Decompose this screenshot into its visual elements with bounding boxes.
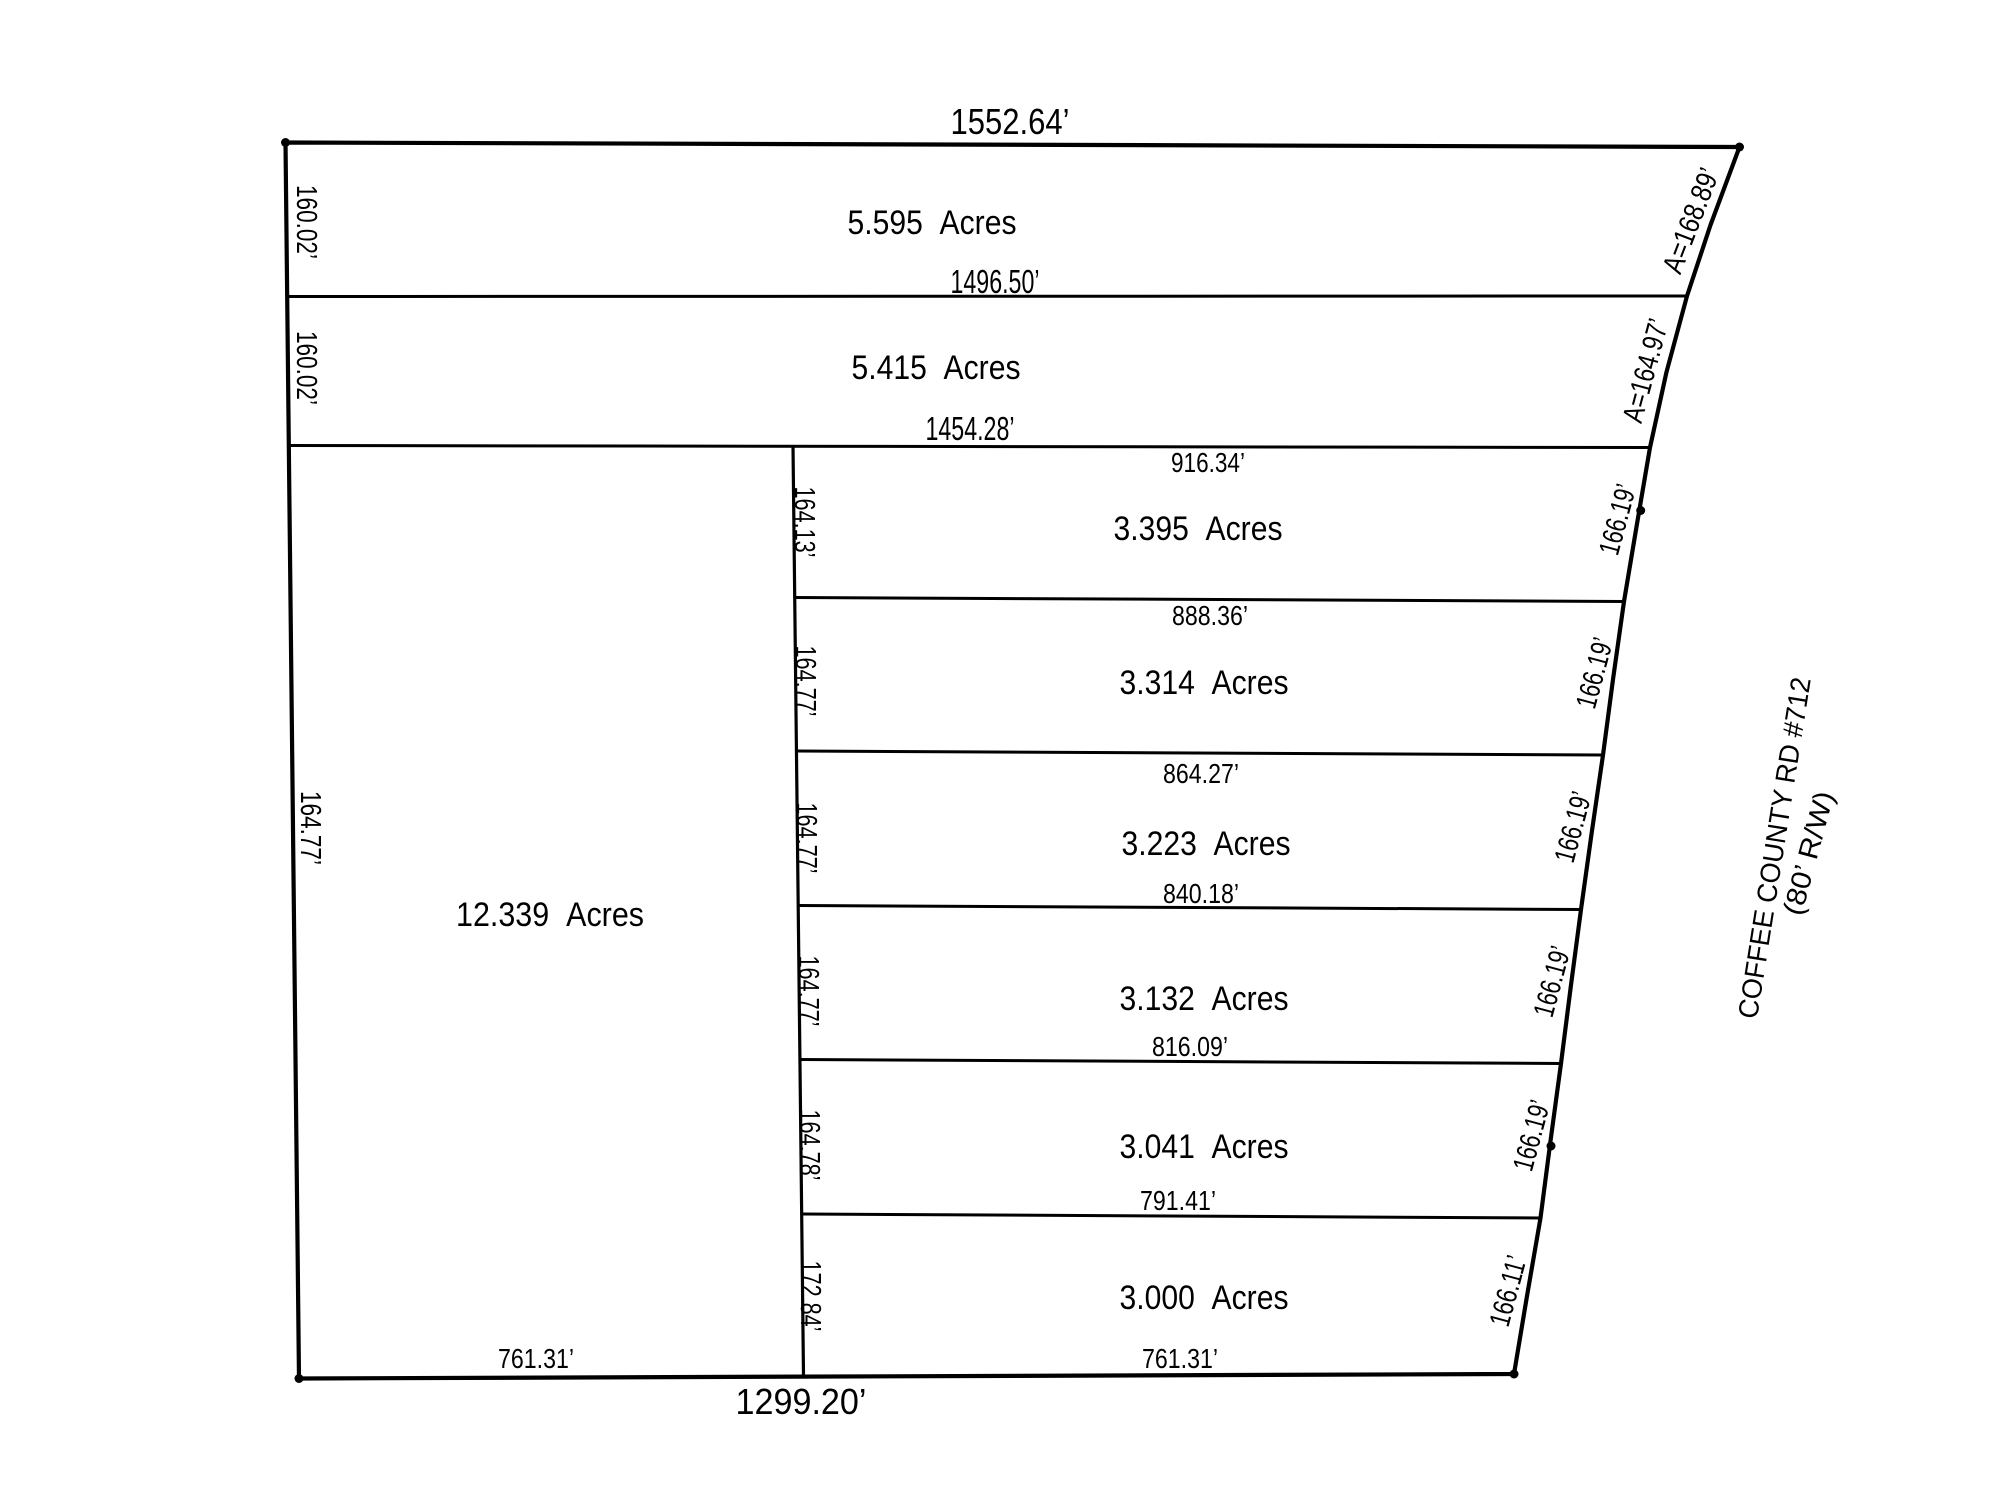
svg-text:5.415 Acres: 5.415 Acres — [852, 349, 1021, 387]
svg-text:164.77’: 164.77’ — [789, 646, 821, 717]
svg-text:791.41’: 791.41’ — [1140, 1185, 1216, 1216]
svg-text:840.18’: 840.18’ — [1163, 878, 1239, 909]
svg-text:164.13’: 164.13’ — [788, 487, 820, 558]
svg-text:172.84’: 172.84’ — [794, 1261, 826, 1332]
svg-text:1496.50’: 1496.50’ — [951, 263, 1040, 300]
svg-text:3.041 Acres: 3.041 Acres — [1120, 1128, 1289, 1166]
svg-text:1552.64’: 1552.64’ — [951, 101, 1070, 142]
svg-text:160.02’: 160.02’ — [290, 185, 322, 259]
svg-text:761.31’: 761.31’ — [1142, 1343, 1218, 1374]
svg-text:3.223 Acres: 3.223 Acres — [1122, 825, 1291, 863]
svg-text:816.09’: 816.09’ — [1152, 1031, 1228, 1062]
svg-text:3.314 Acres: 3.314 Acres — [1120, 664, 1289, 702]
svg-text:164.77’: 164.77’ — [792, 956, 824, 1027]
svg-text:1299.20’: 1299.20’ — [736, 1381, 867, 1422]
svg-text:888.36’: 888.36’ — [1172, 600, 1248, 631]
svg-text:12.339 Acres: 12.339 Acres — [456, 896, 644, 934]
svg-text:5.595 Acres: 5.595 Acres — [848, 204, 1017, 242]
svg-text:3.132 Acres: 3.132 Acres — [1120, 980, 1289, 1018]
svg-text:916.34’: 916.34’ — [1171, 447, 1245, 478]
svg-text:160.02’: 160.02’ — [290, 331, 322, 405]
svg-text:3.000 Acres: 3.000 Acres — [1120, 1279, 1289, 1317]
svg-text:164.78’: 164.78’ — [793, 1110, 825, 1181]
svg-text:864.27’: 864.27’ — [1163, 758, 1239, 789]
svg-text:3.395 Acres: 3.395 Acres — [1114, 510, 1283, 548]
svg-text:761.31’: 761.31’ — [498, 1343, 574, 1374]
svg-text:164.77’: 164.77’ — [790, 803, 822, 874]
svg-text:164.77’: 164.77’ — [294, 791, 326, 865]
svg-text:1454.28’: 1454.28’ — [926, 410, 1015, 447]
